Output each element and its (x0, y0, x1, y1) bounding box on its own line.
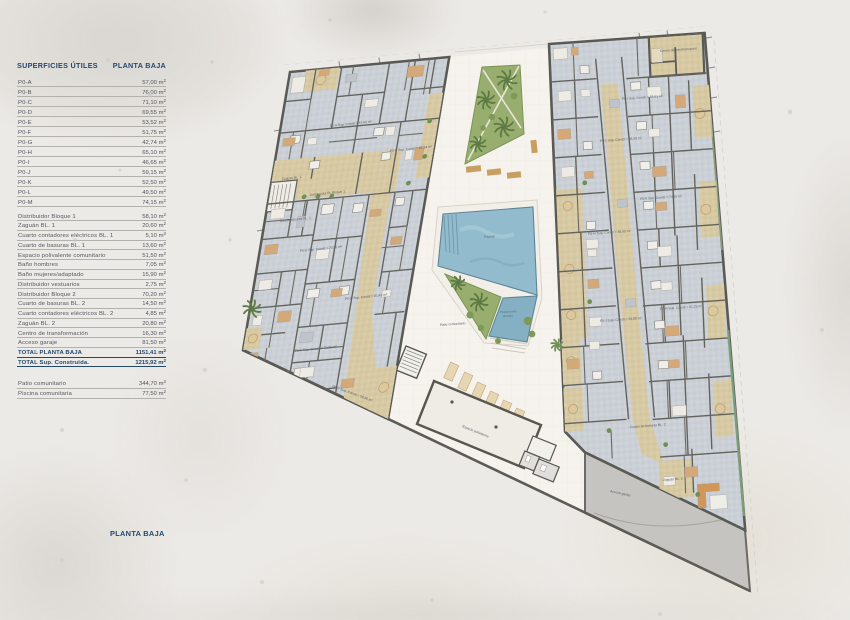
svg-text:Piscina: Piscina (484, 234, 495, 239)
svg-text:elevada: elevada (503, 313, 513, 318)
